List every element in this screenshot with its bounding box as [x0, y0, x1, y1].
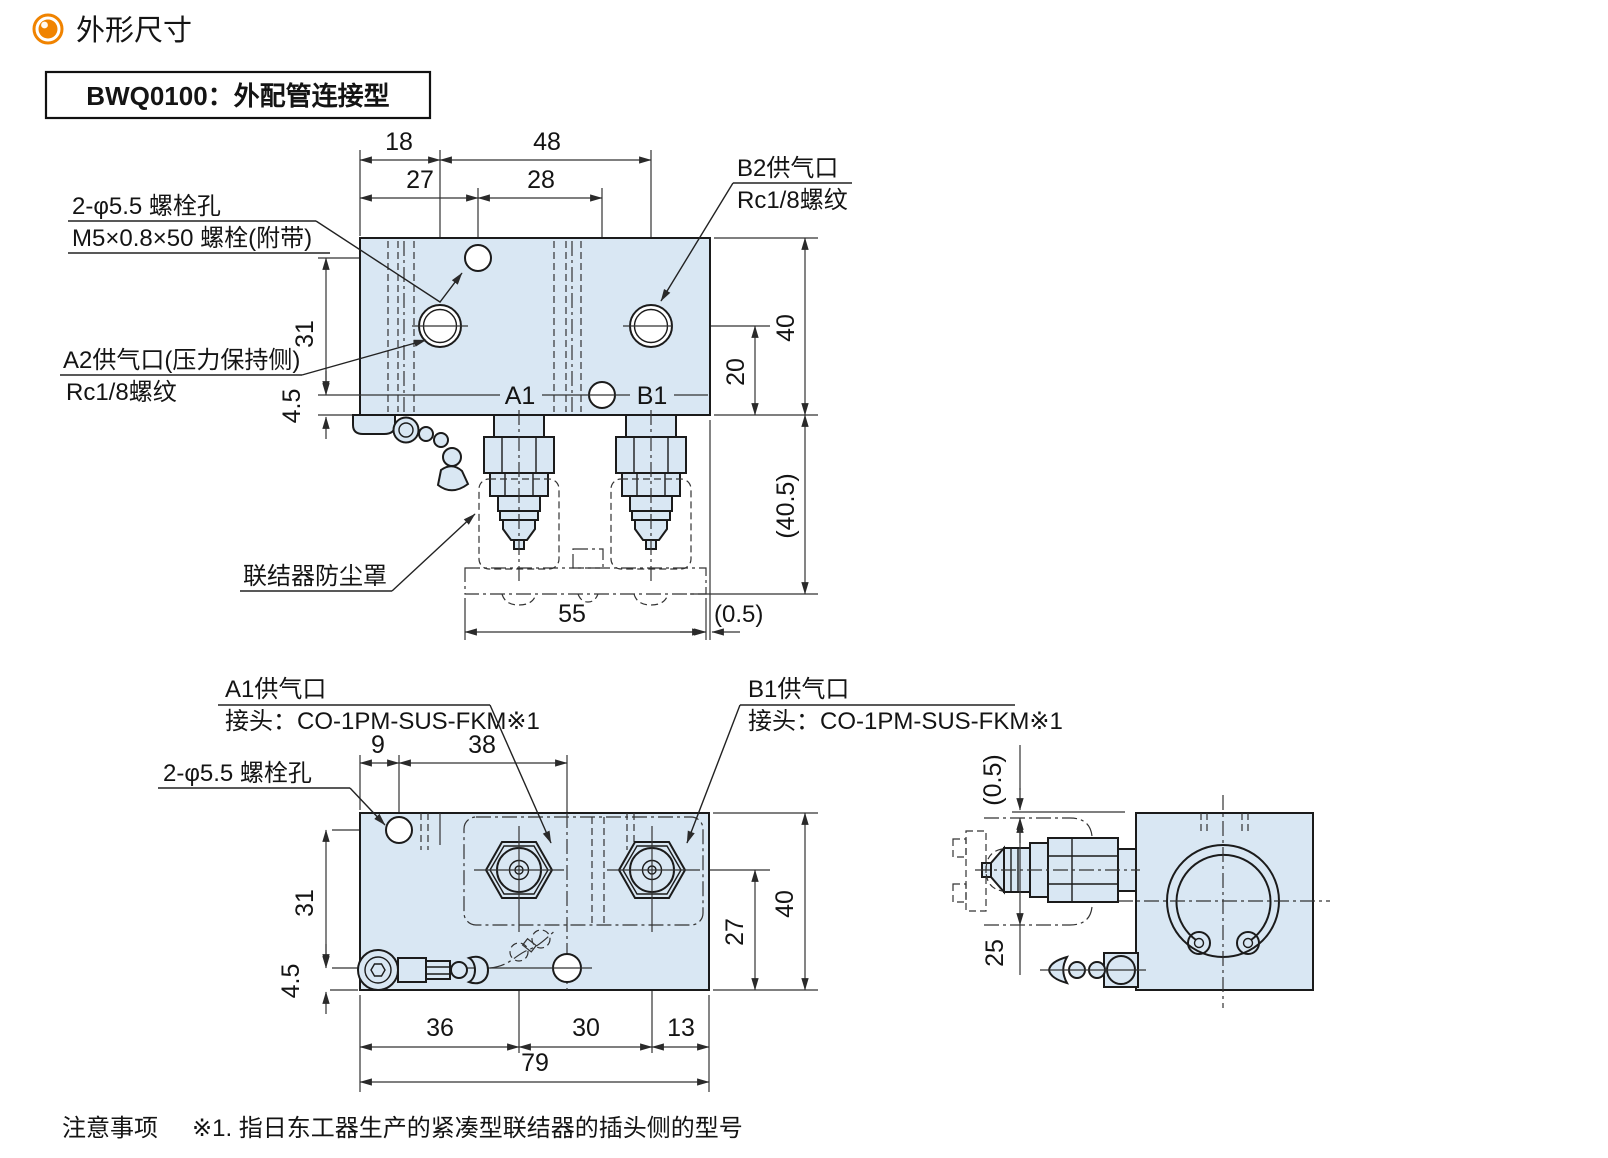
dim-18: 18: [385, 128, 413, 156]
header: 外形尺寸 BWQ0100：外配管连接型: [34, 14, 430, 118]
bolt-hole-label-plan: 2-φ5.5 螺栓孔: [163, 760, 312, 787]
coupler-b1: [616, 410, 686, 585]
dim-28: 28: [527, 166, 555, 194]
drawing-page: 外形尺寸 BWQ0100：外配管连接型: [0, 0, 1608, 1158]
dim-27: 27: [406, 166, 434, 194]
b1-port-label-line1: B1供气口: [748, 676, 849, 703]
dim-40-5: (40.5): [772, 473, 800, 538]
note-prefix: 注意事项: [62, 1115, 158, 1142]
dim-20: 20: [722, 358, 750, 386]
dim-31-bottom: 31: [291, 889, 319, 917]
coupler-a1: [484, 410, 554, 585]
note-body: ※1. 指日东工器生产的紧凑型联结器的插头侧的型号: [192, 1115, 743, 1142]
coupler-side: [975, 838, 1140, 902]
chain-anchor-side: [1040, 953, 1146, 987]
dim-25: 25: [981, 939, 1009, 967]
chain-front: [353, 415, 468, 490]
bolt-hole-plan: [386, 817, 412, 843]
bottom-view: 9 38 31 4.5 36 30 13 79 27 40: [158, 676, 1063, 1092]
dim-40-top: 40: [772, 314, 800, 342]
dim-4-5-bottom: 4.5: [277, 964, 305, 999]
dim-0-5-top: (0.5): [714, 601, 763, 628]
a1-port-label-line1: A1供气口: [225, 676, 326, 703]
b2-port-label-line2: Rc1/8螺纹: [737, 187, 848, 214]
dust-cover-label: 联结器防尘罩: [243, 563, 387, 590]
dim-38: 38: [468, 731, 496, 759]
dimension-drawing: 外形尺寸 BWQ0100：外配管连接型: [0, 0, 1608, 1158]
b1-port-label-line2: 接头：CO-1PM-SUS-FKM※1: [748, 708, 1063, 735]
footnote: 注意事项 ※1. 指日东工器生产的紧凑型联结器的插头侧的型号: [62, 1115, 743, 1142]
bolt-hole-label-line1: 2-φ5.5 螺栓孔: [72, 193, 221, 220]
port-label-a1-front: A1: [505, 382, 536, 410]
dim-9: 9: [371, 731, 385, 759]
dim-36: 36: [426, 1014, 454, 1042]
dim-0-5-side: (0.5): [979, 754, 1007, 805]
dim-79: 79: [521, 1049, 549, 1077]
dim-40-bottom: 40: [771, 890, 799, 918]
dim-4-5-top: 4.5: [278, 389, 306, 424]
dim-48: 48: [533, 128, 561, 156]
dim-55: 55: [558, 600, 586, 628]
section-bullet-icon: [34, 15, 62, 43]
model-box-title: BWQ0100：外配管连接型: [86, 81, 389, 111]
bolt-hole-label-line2: M5×0.8×50 螺栓(附带): [72, 225, 312, 252]
top-view: 18 48 27 28 31 4.5 40 20 (40.5) 55 (0.5): [60, 128, 852, 640]
a2-port-label-line2: Rc1/8螺纹: [66, 379, 177, 406]
dim-27: 27: [721, 918, 749, 946]
port-label-b1-front: B1: [637, 382, 668, 410]
dim-30: 30: [572, 1014, 600, 1042]
a2-port-label-line1: A2供气口(压力保持侧): [63, 347, 300, 374]
bolt-hole-front: [465, 245, 491, 271]
dim-31-top: 31: [291, 320, 319, 348]
dim-13: 13: [667, 1014, 695, 1042]
side-view: (0.5) 25: [953, 745, 1330, 1008]
page-title: 外形尺寸: [76, 14, 192, 47]
b2-port-label-line1: B2供气口: [737, 155, 838, 182]
